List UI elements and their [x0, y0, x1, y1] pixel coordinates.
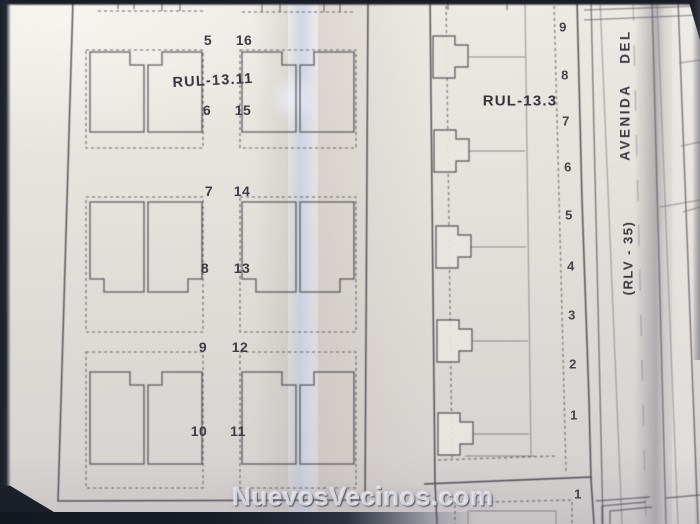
middle-block-inner-lines	[465, 0, 535, 456]
right-strip-number: 1	[570, 408, 578, 423]
avenue-lines	[584, 0, 700, 524]
next-block-number: 1	[574, 487, 582, 502]
left-block-number: 5	[204, 32, 212, 48]
plan-drawing	[0, 0, 700, 524]
plan-photo: 5 6 7 8 9 10 16 15 14 13 12 11 RUL-13.11…	[0, 0, 700, 524]
left-block-number: 6	[203, 102, 211, 118]
photo-edge-top	[0, 0, 700, 6]
left-block-number: 12	[232, 339, 249, 355]
left-block-houses	[90, 52, 354, 464]
avenue-name-label: AVENIDA DEL	[618, 29, 633, 161]
photo-edge-right	[692, 0, 700, 360]
right-block-label: RUL-13.3	[483, 93, 558, 110]
left-block-number: 8	[201, 260, 209, 276]
photo-edge-bottom	[0, 512, 480, 524]
right-strip-number: 6	[564, 160, 572, 175]
photo-edge-left	[0, 0, 11, 524]
right-strip-number: 5	[565, 208, 573, 223]
avenue-code-label: (RLV - 35)	[621, 221, 636, 296]
left-block-number: 7	[205, 183, 213, 199]
middle-block-houses	[433, 36, 473, 455]
bottom-street-corner	[596, 495, 700, 524]
right-strip-number: 3	[568, 308, 576, 323]
left-block-number: 16	[236, 32, 253, 48]
left-block-number: 15	[235, 102, 252, 118]
right-strip-number: 2	[569, 357, 577, 372]
left-block-number: 11	[230, 423, 246, 439]
watermark: NuevosVecinos.com	[232, 482, 493, 513]
right-strip-number: 8	[561, 68, 569, 83]
left-block-number: 9	[199, 339, 207, 355]
left-block-number: 14	[234, 183, 251, 199]
right-strip-number: 9	[559, 20, 567, 35]
right-strip-number: 7	[562, 114, 570, 129]
left-block-number: 10	[191, 423, 208, 439]
right-strip-number: 4	[567, 259, 575, 274]
left-block-number: 13	[234, 260, 251, 276]
